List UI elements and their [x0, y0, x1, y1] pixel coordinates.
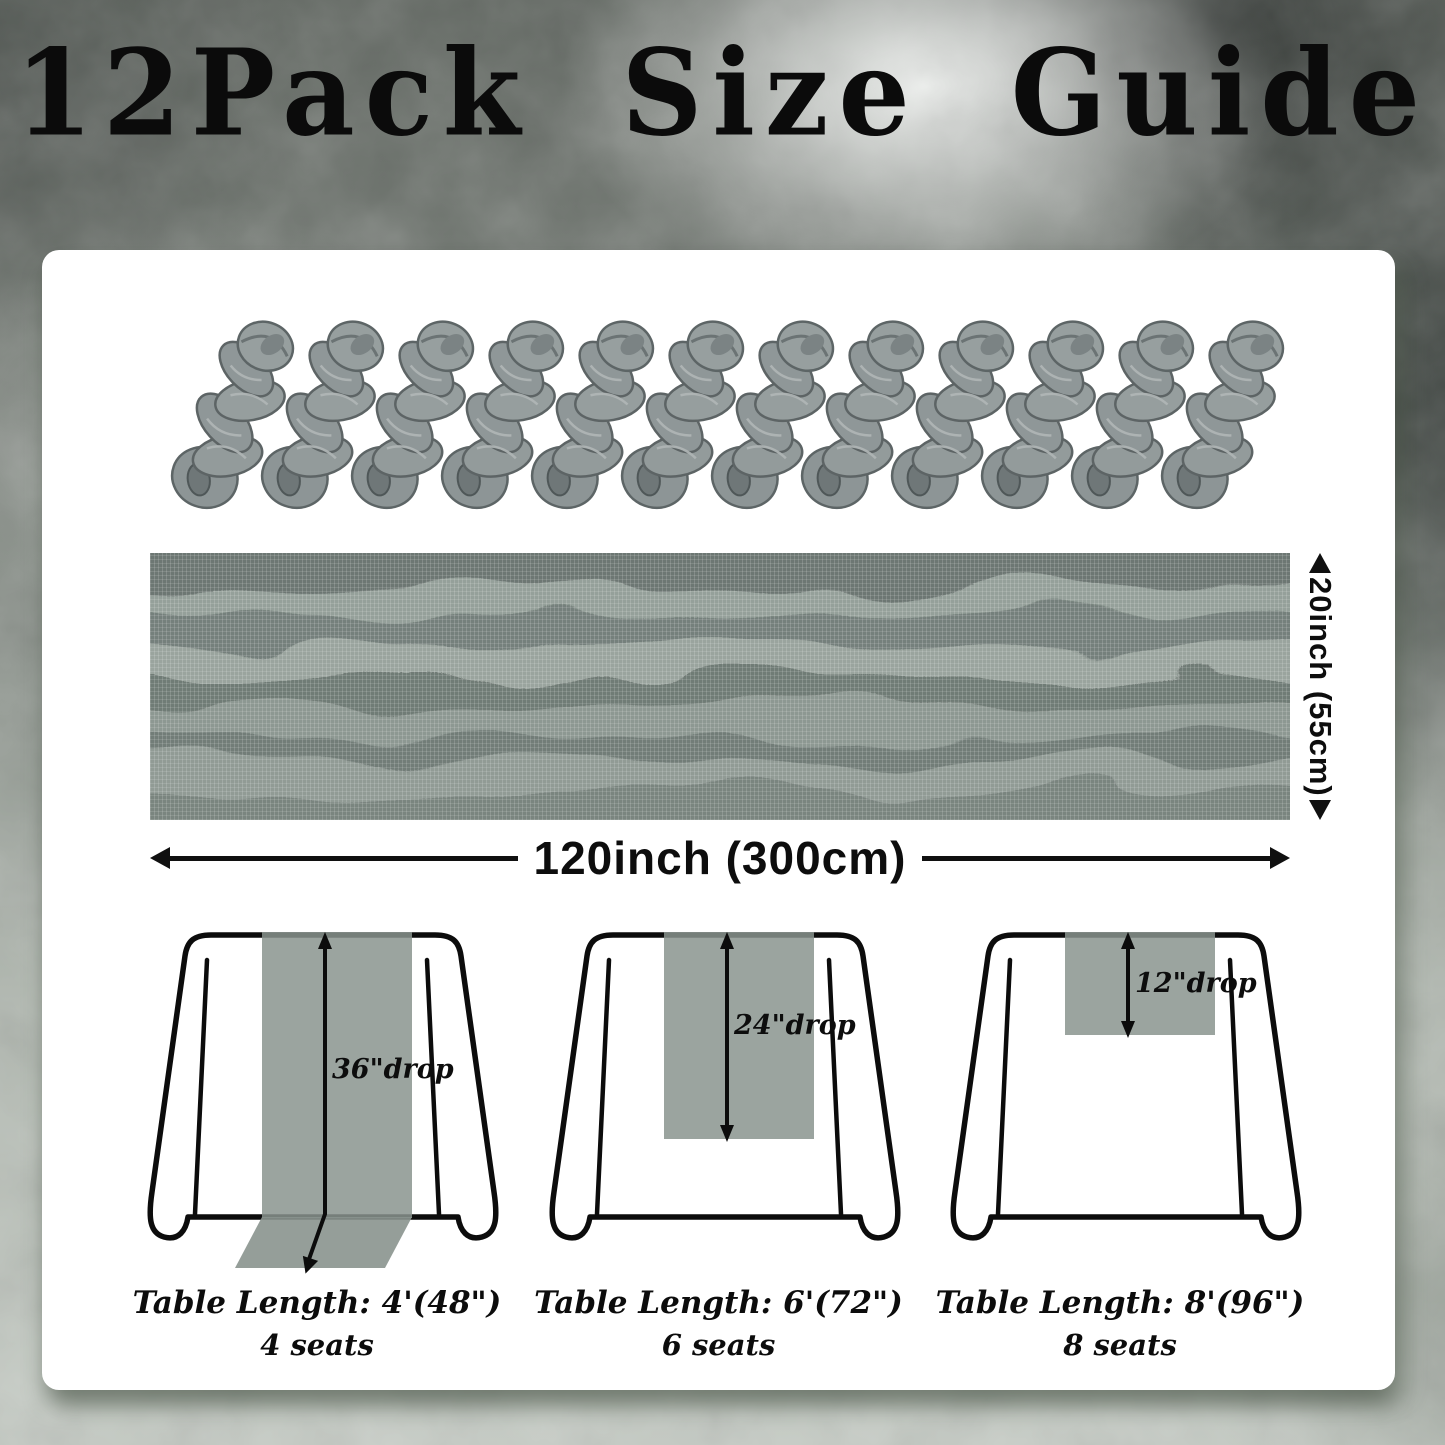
- fabric-skein: [1150, 306, 1300, 524]
- content-card: 20inch (55cm) 120inch (300cm): [42, 250, 1395, 1390]
- table-diagram-4ft: 36"drop Table Length: 4'(48") 4 seats: [127, 916, 507, 1362]
- table-seats-caption: 8 seats: [930, 1328, 1310, 1362]
- table-length-caption: Table Length: 4'(48"): [127, 1285, 507, 1321]
- skein-row: [160, 306, 1240, 524]
- page-title: 12Pack Size Guide: [0, 24, 1445, 163]
- arrow-down-icon: [1309, 800, 1331, 820]
- table-length-caption: Table Length: 8'(96"): [930, 1285, 1310, 1321]
- height-dimension: 20inch (55cm): [1288, 553, 1352, 820]
- table-illustration-8ft: 12"drop: [930, 916, 1310, 1281]
- table-seats-caption: 4 seats: [127, 1328, 507, 1362]
- width-dimension-label: 120inch (300cm): [534, 831, 907, 885]
- table-length-caption: Table Length: 6'(72"): [529, 1285, 909, 1321]
- drop-label-36: 36"drop: [332, 1054, 454, 1085]
- table-diagram-6ft: 24"drop Table Length: 6'(72") 6 seats: [529, 916, 909, 1362]
- table-diagrams: 36"drop Table Length: 4'(48") 4 seats 24…: [127, 916, 1310, 1362]
- dimension-line: [1318, 571, 1323, 572]
- size-guide-infographic: 12Pack Size Guide: [0, 0, 1445, 1445]
- drop-label-24: 24"drop: [733, 1010, 856, 1041]
- drop-label-12: 12"drop: [1135, 968, 1257, 999]
- arrow-left-icon: [150, 847, 170, 869]
- table-illustration-4ft: 36"drop: [127, 916, 507, 1281]
- gauze-mesh-overlay: [150, 553, 1290, 820]
- table-illustration-6ft: 24"drop: [529, 916, 909, 1281]
- table-diagram-8ft: 12"drop Table Length: 8'(96") 8 seats: [930, 916, 1310, 1362]
- arrow-up-icon: [1309, 553, 1331, 573]
- arrow-right-icon: [1270, 847, 1290, 869]
- table-seats-caption: 6 seats: [529, 1328, 909, 1362]
- dimension-line: [168, 856, 518, 861]
- dimension-line: [922, 856, 1272, 861]
- height-dimension-label: 20inch (55cm): [1302, 577, 1338, 797]
- width-dimension: 120inch (300cm): [150, 830, 1290, 886]
- fabric-swatch: [150, 553, 1290, 820]
